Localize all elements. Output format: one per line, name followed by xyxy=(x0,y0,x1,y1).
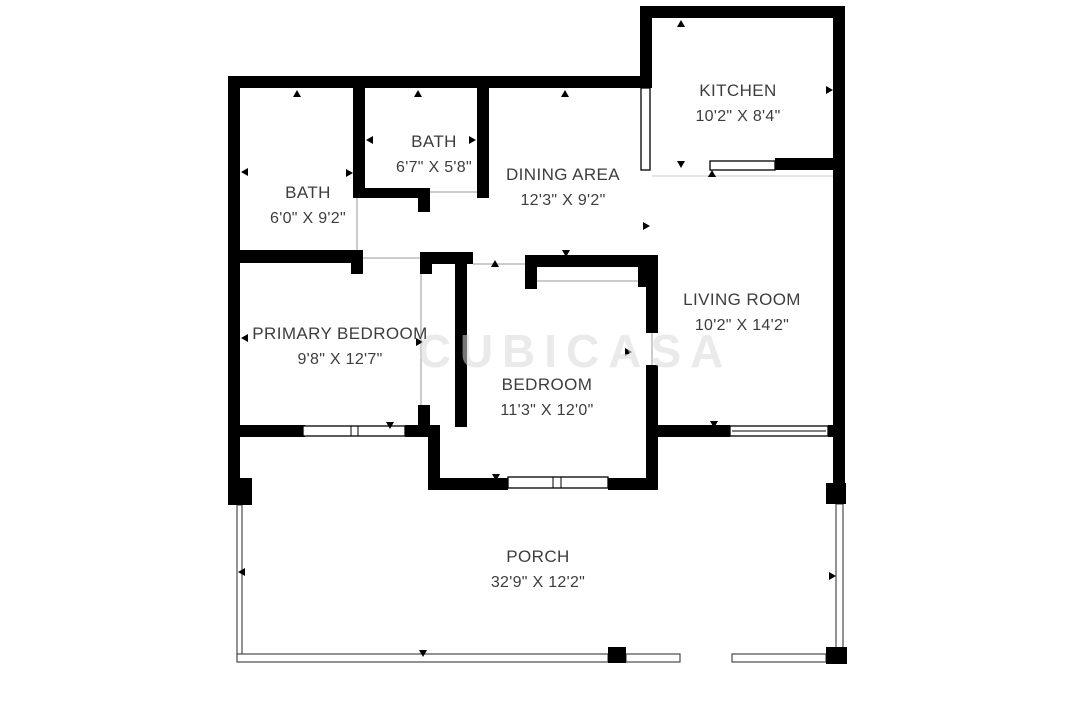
marker-icon xyxy=(561,90,569,97)
wall-bedroom-east-a xyxy=(646,255,658,333)
room-dims-living-room: 10'2" X 14'2" xyxy=(695,317,789,334)
room-dims-bath-small: 6'7" X 5'8" xyxy=(396,159,472,176)
room-dims-kitchen: 10'2" X 8'4" xyxy=(695,108,780,125)
wall-east-lower xyxy=(833,437,845,483)
wall-bedroom-top xyxy=(525,255,648,267)
porch-post-ne xyxy=(826,483,846,504)
floor-plan-svg: CUBICASA KITCHEN 10'2" X 8'4" BATH 6'7" … xyxy=(0,0,1074,702)
wall-bath-bottom-stub xyxy=(351,250,363,274)
room-label-primary-bedroom: PRIMARY BEDROOM xyxy=(252,324,427,343)
room-label-kitchen: KITCHEN xyxy=(699,81,776,100)
marker-icon xyxy=(414,90,422,97)
room-label-living-room: LIVING ROOM xyxy=(683,290,801,309)
porch-screen-bottom-c xyxy=(732,654,826,662)
room-label-bath-small: BATH xyxy=(411,132,457,151)
wall-bath-small-stub xyxy=(418,188,430,212)
porch-screen-bottom-b xyxy=(626,654,680,662)
wall-bath-divider xyxy=(353,88,365,198)
marker-icon xyxy=(708,170,716,177)
marker-icon xyxy=(366,136,373,144)
room-dims-bath: 6'0" X 9'2" xyxy=(270,210,346,227)
marker-icon xyxy=(346,169,353,177)
room-label-bedroom: BEDROOM xyxy=(502,375,593,394)
porch-post-south xyxy=(608,647,626,663)
wall-primary-closet-stub xyxy=(418,405,430,427)
wall-kitchen-south xyxy=(775,158,845,170)
wall-bath-small-east xyxy=(477,88,489,198)
room-dims-porch: 32'9" X 12'2" xyxy=(491,574,585,591)
room-label-porch: PORCH xyxy=(506,547,569,566)
wall-bedroom-bump-east xyxy=(646,437,658,490)
wall-bottom-c xyxy=(646,425,730,437)
wall-west xyxy=(228,76,240,478)
wall-bottom-d xyxy=(828,425,845,437)
marker-icon xyxy=(677,161,685,168)
wall-top xyxy=(228,76,652,88)
floor-plan: CUBICASA KITCHEN 10'2" X 8'4" BATH 6'7" … xyxy=(0,0,1074,702)
wall-kitchen-west xyxy=(640,6,652,88)
marker-icon xyxy=(293,90,301,97)
porch-post-se xyxy=(826,647,847,664)
wall-hall-stub xyxy=(420,252,432,274)
room-label-dining-area: DINING AREA xyxy=(506,165,620,184)
room-dims-dining-area: 12'3" X 9'2" xyxy=(520,192,605,209)
kitchen-pass-opening xyxy=(641,88,650,170)
marker-icon xyxy=(826,86,833,94)
marker-icon xyxy=(677,20,685,27)
bedroom-window xyxy=(508,477,608,488)
marker-icon xyxy=(829,572,836,580)
wall-east xyxy=(833,6,845,437)
marker-icon xyxy=(469,136,476,144)
windows xyxy=(303,88,828,488)
room-dims-bedroom: 11'3" X 12'0" xyxy=(500,402,593,419)
marker-icon xyxy=(241,334,248,342)
porch-post-nw xyxy=(228,478,252,505)
wall-bedroom-closet-stub-left xyxy=(525,267,537,289)
wall-bath-bottom xyxy=(228,250,363,263)
marker-icon xyxy=(643,222,650,230)
watermark-text: CUBICASA xyxy=(418,325,733,377)
kitchen-counter-opening xyxy=(710,161,775,170)
porch-screen-left xyxy=(237,505,242,657)
wall-bottom-a xyxy=(228,425,305,437)
wall-kitchen-top xyxy=(640,6,845,18)
marker-icon xyxy=(241,168,248,176)
porch-screen-right xyxy=(836,504,843,654)
room-dims-primary-bedroom: 9'8" X 12'7" xyxy=(297,351,382,368)
room-label-bath: BATH xyxy=(285,183,331,202)
